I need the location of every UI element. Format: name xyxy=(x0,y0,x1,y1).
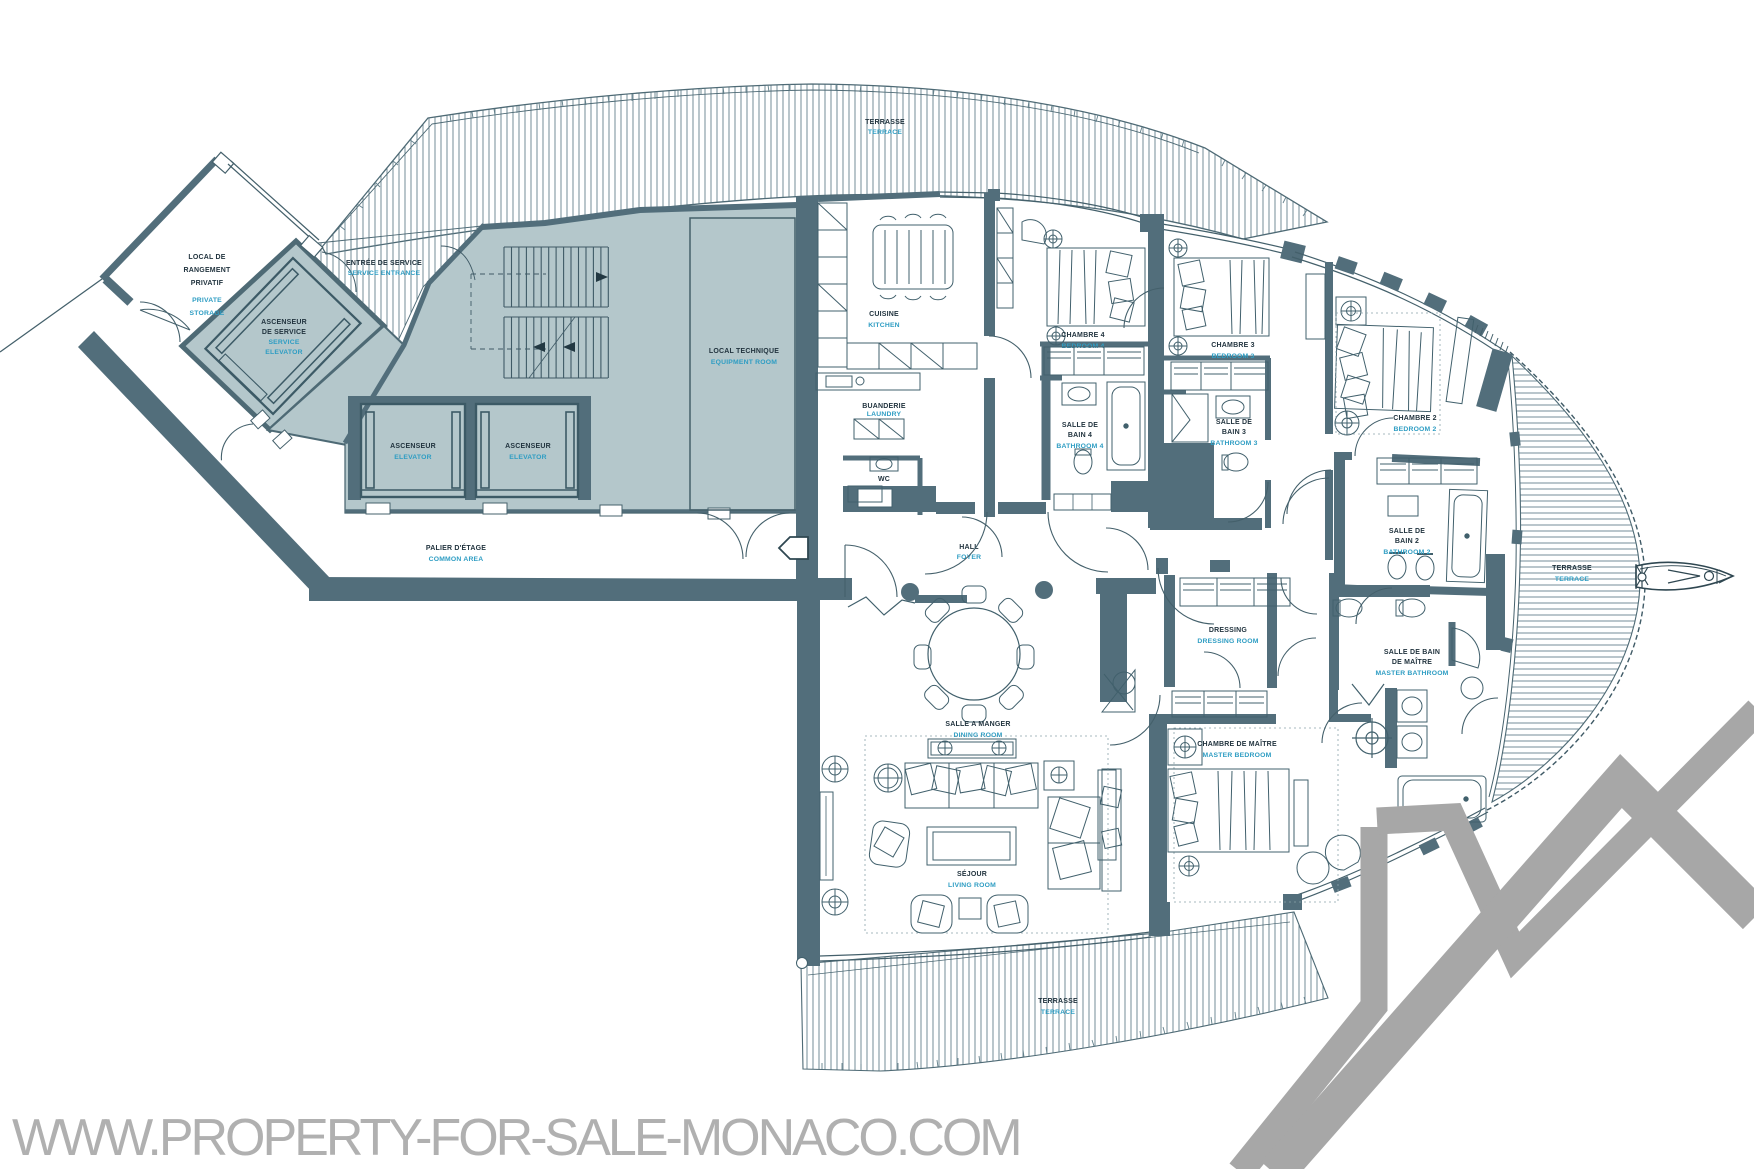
svg-text:LOCAL DE: LOCAL DE xyxy=(188,254,225,261)
svg-text:SALLE DE BAIN: SALLE DE BAIN xyxy=(1384,649,1440,656)
svg-text:CHAMBRE DE MAÎTRE: CHAMBRE DE MAÎTRE xyxy=(1197,739,1277,748)
svg-text:SALLE A MANGER: SALLE A MANGER xyxy=(945,721,1010,728)
svg-text:SERVICE: SERVICE xyxy=(268,339,299,346)
svg-text:LOCAL TECHNIQUE: LOCAL TECHNIQUE xyxy=(709,348,779,355)
svg-text:LIVING ROOM: LIVING ROOM xyxy=(948,882,996,889)
svg-text:CUISINE: CUISINE xyxy=(869,311,899,318)
svg-text:TERRASSE: TERRASSE xyxy=(1552,565,1592,572)
svg-text:CHAMBRE 3: CHAMBRE 3 xyxy=(1211,342,1254,349)
svg-text:ASCENSEUR: ASCENSEUR xyxy=(390,443,436,450)
svg-text:MASTER BATHROOM: MASTER BATHROOM xyxy=(1375,670,1448,677)
svg-text:DINING ROOM: DINING ROOM xyxy=(953,732,1002,739)
svg-text:BEDROOM 2: BEDROOM 2 xyxy=(1394,426,1437,433)
svg-text:CHAMBRE 4: CHAMBRE 4 xyxy=(1061,332,1104,339)
svg-text:TERRASSE: TERRASSE xyxy=(865,119,905,126)
svg-text:SALLE DE: SALLE DE xyxy=(1216,419,1252,426)
svg-text:BAIN 2: BAIN 2 xyxy=(1395,538,1419,545)
svg-text:CHAMBRE 2: CHAMBRE 2 xyxy=(1393,415,1436,422)
svg-text:MASTER BEDROOM: MASTER BEDROOM xyxy=(1203,752,1272,759)
svg-text:ENTRÉE DE SERVICE: ENTRÉE DE SERVICE xyxy=(346,258,422,267)
svg-text:BATHROOM 3: BATHROOM 3 xyxy=(1210,440,1257,447)
svg-text:TERRASSE: TERRASSE xyxy=(1038,998,1078,1005)
svg-text:STORAGE: STORAGE xyxy=(190,310,225,317)
svg-text:EQUIPMENT ROOM: EQUIPMENT ROOM xyxy=(711,359,777,366)
svg-text:RANGEMENT: RANGEMENT xyxy=(184,267,231,274)
svg-text:PRIVATIF: PRIVATIF xyxy=(191,280,224,287)
svg-text:WC: WC xyxy=(878,476,890,483)
svg-text:SALLE DE: SALLE DE xyxy=(1389,528,1425,535)
svg-text:BATHROOM 2: BATHROOM 2 xyxy=(1383,549,1430,556)
svg-text:BUANDERIE: BUANDERIE xyxy=(862,403,906,410)
svg-text:SALLE DE: SALLE DE xyxy=(1062,422,1098,429)
svg-text:DE SERVICE: DE SERVICE xyxy=(262,329,306,336)
svg-text:DE MAÎTRE: DE MAÎTRE xyxy=(1392,657,1432,666)
svg-text:TERRACE: TERRACE xyxy=(1041,1009,1076,1016)
svg-text:DRESSING ROOM: DRESSING ROOM xyxy=(1197,638,1258,645)
svg-text:ASCENSEUR: ASCENSEUR xyxy=(261,319,307,326)
svg-text:PRIVATE: PRIVATE xyxy=(192,297,222,304)
svg-text:TERRACE: TERRACE xyxy=(1555,576,1590,583)
svg-text:ELEVATOR: ELEVATOR xyxy=(509,454,546,461)
svg-text:TERRACE: TERRACE xyxy=(868,129,903,136)
svg-text:SERVICE ENTRANCE: SERVICE ENTRANCE xyxy=(348,270,421,277)
svg-text:PALIER D'ÉTAGE: PALIER D'ÉTAGE xyxy=(426,543,486,552)
svg-text:ELEVATOR: ELEVATOR xyxy=(265,349,302,356)
svg-text:KITCHEN: KITCHEN xyxy=(868,322,900,329)
svg-text:SÉJOUR: SÉJOUR xyxy=(957,869,987,878)
svg-text:COMMON AREA: COMMON AREA xyxy=(429,556,484,563)
svg-text:BATHROOM 4: BATHROOM 4 xyxy=(1056,443,1103,450)
svg-text:BAIN 4: BAIN 4 xyxy=(1068,432,1092,439)
svg-text:DRESSING: DRESSING xyxy=(1209,627,1248,634)
svg-text:ASCENSEUR: ASCENSEUR xyxy=(505,443,551,450)
svg-text:WWW.PROPERTY-FOR-SALE-MONACO.C: WWW.PROPERTY-FOR-SALE-MONACO.COM xyxy=(12,1109,1020,1167)
svg-text:BEDROOM 3: BEDROOM 3 xyxy=(1212,353,1255,360)
svg-text:LAUNDRY: LAUNDRY xyxy=(867,411,902,418)
svg-text:ELEVATOR: ELEVATOR xyxy=(394,454,431,461)
svg-text:BAIN 3: BAIN 3 xyxy=(1222,429,1246,436)
